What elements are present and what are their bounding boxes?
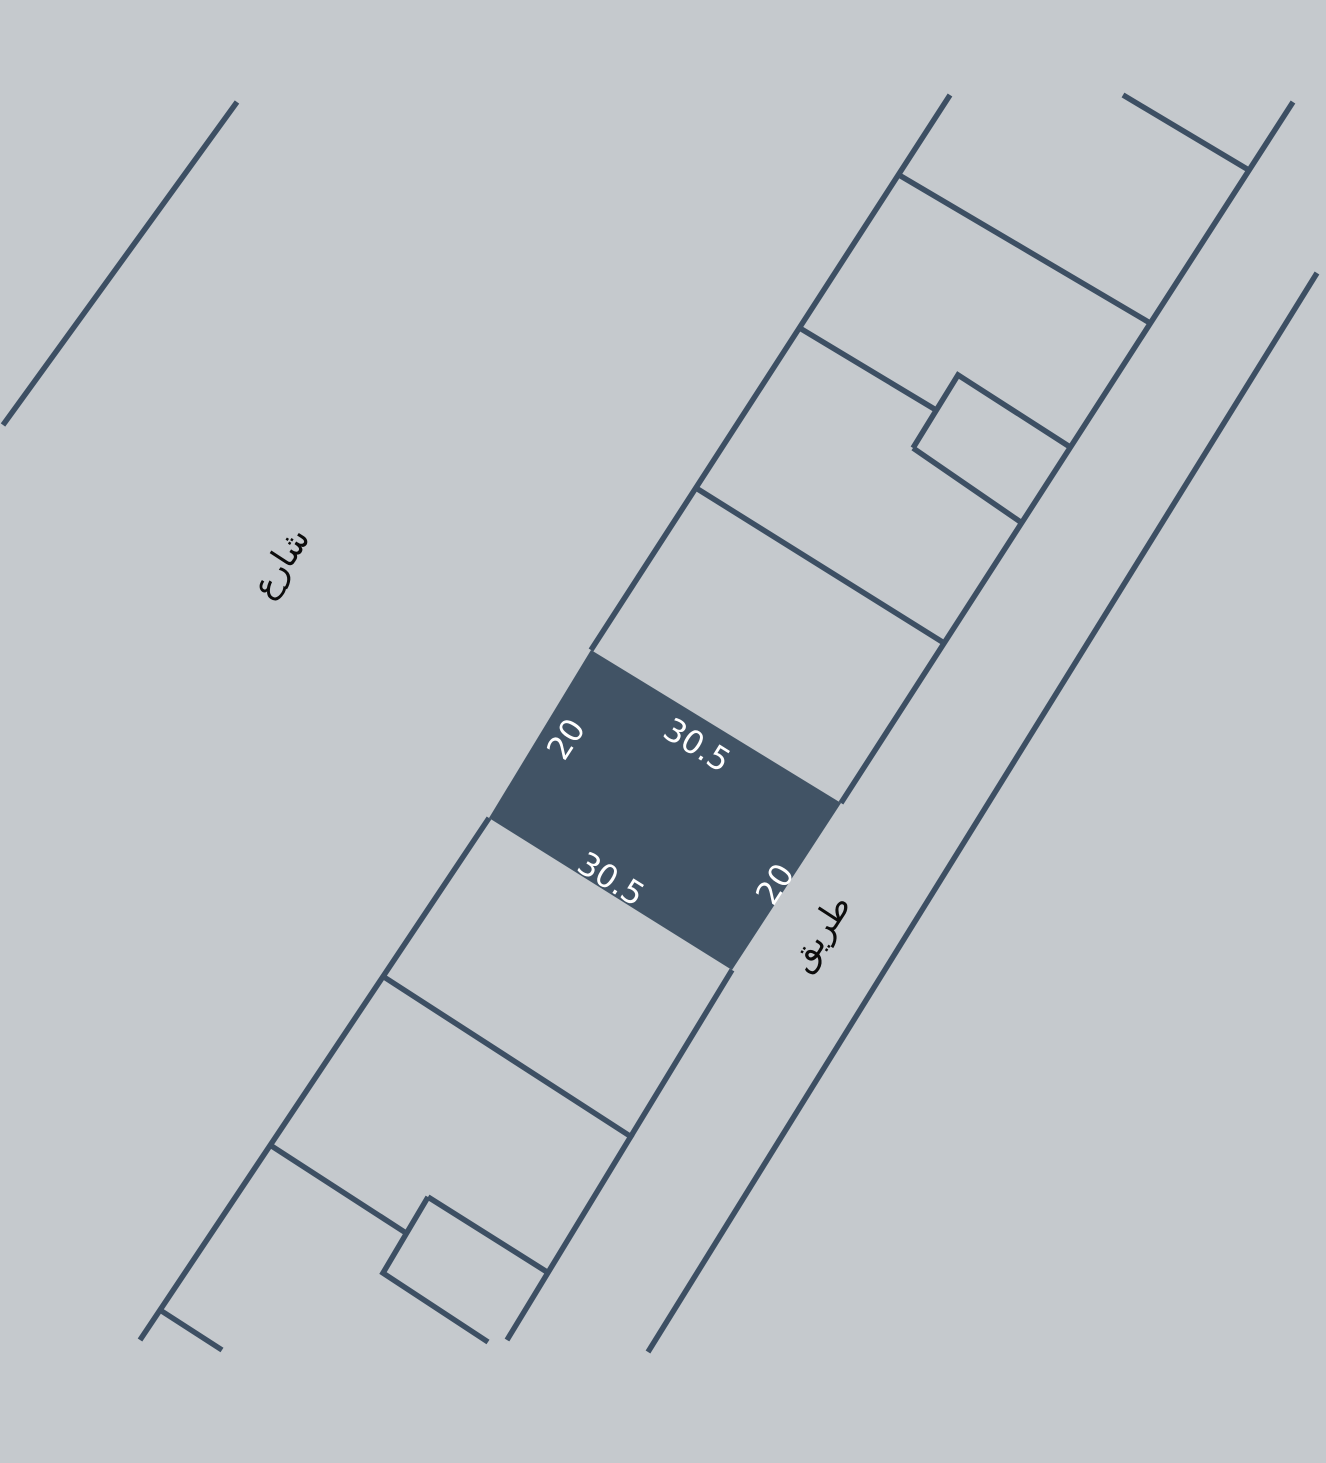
parcel-divider-1 — [899, 175, 1150, 323]
parcel-divider-top-partial — [1123, 95, 1247, 169]
parcel-divider-5 — [270, 1145, 406, 1233]
parcel-divider-3 — [696, 488, 944, 643]
parcel-block — [140, 95, 1293, 1350]
parcel-map: 20 30.5 30.5 20 شارع طريق — [0, 0, 1326, 1463]
block-left-edge-lower — [140, 818, 489, 1340]
block-right-edge-upper — [841, 102, 1293, 803]
highlighted-parcel[interactable] — [489, 650, 841, 970]
block-right-edge-lower — [507, 970, 732, 1340]
parcel-divider-2 — [798, 327, 936, 410]
road-label: طريق — [780, 887, 859, 979]
lower-notch-rectangle — [383, 1197, 547, 1342]
street-label: شارع — [244, 520, 319, 605]
page: { "map": { "street_label": "شارع", "road… — [0, 0, 1326, 1463]
street-edge-line — [3, 102, 237, 425]
block-left-edge-upper — [591, 95, 950, 650]
upper-notch-rectangle — [913, 375, 1070, 523]
parcel-divider-6-stub — [160, 1310, 222, 1350]
parcel-divider-4 — [384, 977, 633, 1138]
